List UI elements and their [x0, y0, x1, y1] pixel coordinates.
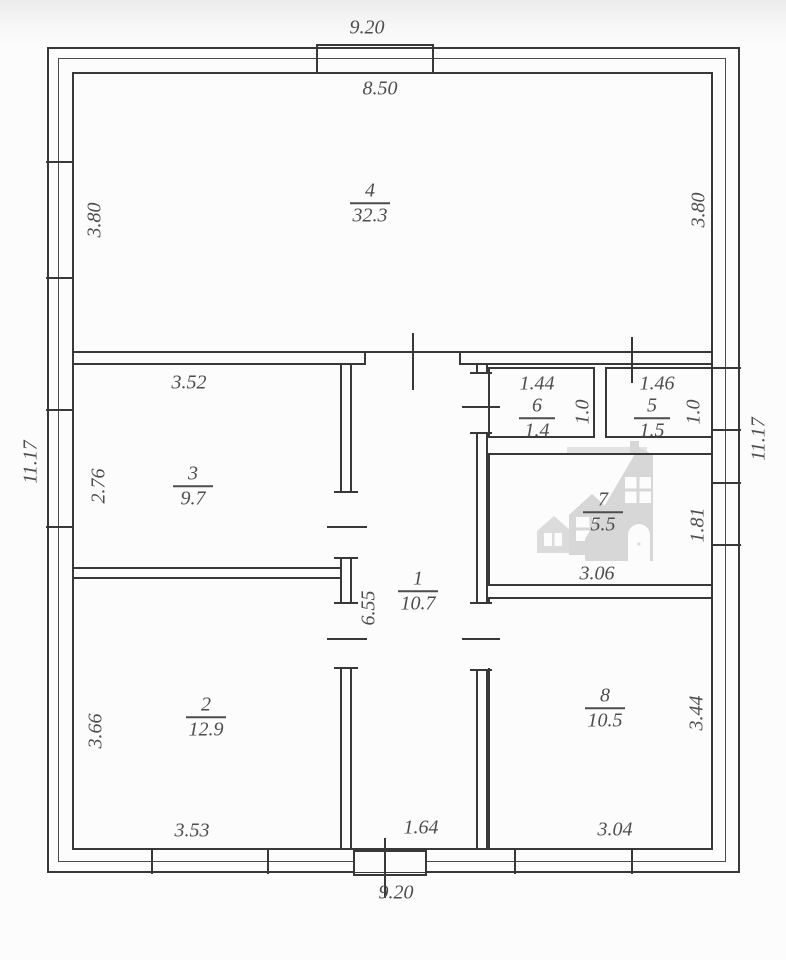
dim-room4-width: 8.50	[363, 78, 398, 101]
dim-room2-width: 3.53	[175, 820, 210, 843]
wall-corridor-left-b1	[350, 365, 352, 492]
room1-label: 1 10.7	[398, 568, 438, 614]
wall-corridor-left-a2	[340, 558, 342, 603]
wall-corridor-left-b3	[350, 668, 352, 850]
dim-room7-width: 3.06	[580, 563, 615, 586]
room7-area: 5.5	[591, 514, 616, 535]
window-bottom-room2-cap-left	[151, 849, 153, 874]
floor-plan: 9.20 9.20 11.17 11.17 8.50 3.80 3.80 4 3…	[0, 0, 786, 960]
window-left-room3-cap-top	[46, 409, 73, 411]
door-cap-room3-top	[334, 491, 358, 493]
wall-corridor-right-a3	[476, 670, 478, 850]
room3-number: 3	[188, 463, 198, 484]
room6-area: 1.4	[525, 420, 550, 441]
dim-room3-height: 2.76	[88, 469, 111, 504]
window-right-room7-cap-bottom	[712, 544, 741, 546]
window-top-cap-left	[316, 45, 318, 73]
wall-corridor-left-a1	[340, 365, 342, 492]
room6-number: 6	[532, 395, 542, 416]
dim-room7-height: 1.81	[687, 508, 710, 543]
window-left-room4-cap-top	[46, 161, 73, 163]
door-dash-room8	[462, 638, 500, 640]
dim-right-overall: 11.17	[748, 417, 771, 461]
room6-label: 6 1.4	[519, 395, 555, 441]
entrance-door	[353, 850, 427, 876]
window-right-room5-cap-bottom	[712, 429, 741, 431]
room5-area: 1.5	[640, 420, 665, 441]
room5-number: 5	[647, 395, 657, 416]
wall-room8-left-upper	[488, 597, 490, 603]
dim-room6-width: 1.44	[520, 373, 555, 396]
wall-room4-bottom-inner-left	[72, 363, 365, 365]
dim-room6-height: 1.0	[572, 400, 595, 425]
wall-corridor-left-b2	[350, 558, 352, 603]
room3-area: 9.7	[181, 488, 206, 509]
wall-room4-bottom-top-line	[72, 351, 713, 353]
window-right-room5-cap-top	[712, 367, 741, 369]
window-right-room7-cap-top	[712, 482, 741, 484]
room5-label: 5 1.5	[634, 395, 670, 441]
door-cap-room2-top	[334, 602, 358, 604]
door-axis-room4-hall	[412, 333, 414, 390]
door-jamb-hall-left	[364, 351, 366, 365]
dim-bottom-overall: 9.20	[379, 882, 414, 905]
dim-room3-width: 3.52	[172, 372, 207, 395]
dim-room8-height: 3.44	[686, 696, 709, 731]
window-bottom-room2-cap-right	[267, 849, 269, 874]
room7-label: 7 5.5	[583, 489, 623, 535]
wall-corridor-left-a3	[340, 668, 342, 850]
room2-area: 12.9	[189, 719, 224, 740]
dim-room5-width: 1.46	[640, 373, 675, 396]
room8-label: 8 10.5	[585, 685, 625, 731]
wall-room4-bottom-inner-right	[460, 363, 713, 365]
room2-number: 2	[201, 694, 211, 715]
window-bottom-room8-cap-right	[631, 849, 633, 874]
dim-room2-height: 3.66	[85, 714, 108, 749]
dim-room5-height: 1.0	[683, 400, 706, 425]
room4-area: 32.3	[353, 205, 388, 226]
door-jamb-hall-right	[459, 351, 461, 365]
room3-label: 3 9.7	[173, 463, 213, 509]
dim-left-overall: 11.17	[20, 440, 43, 484]
dim-room4-left: 3.80	[84, 203, 107, 238]
wall-room3-room2-bottom	[72, 577, 341, 579]
door-dash-room2	[327, 638, 367, 640]
photo-top-fade	[0, 0, 786, 46]
room2-label: 2 12.9	[186, 694, 226, 740]
room8-number: 8	[600, 685, 610, 706]
window-left-room4-cap-bottom	[46, 277, 73, 279]
dim-room1-width: 1.64	[404, 817, 439, 840]
window-bottom-room8-cap-left	[514, 849, 516, 874]
door-dash-room3	[327, 526, 367, 528]
door-cap-room2-bottom	[334, 667, 358, 669]
dim-top-overall: 9.20	[350, 17, 385, 40]
window-top-outer-edge	[316, 44, 434, 46]
room4-label: 4 32.3	[350, 180, 390, 226]
window-top-cap-right	[432, 45, 434, 73]
dim-room8-width: 3.04	[598, 819, 633, 842]
room1-area: 10.7	[401, 593, 436, 614]
dim-room1-height: 6.55	[358, 591, 381, 626]
dim-room4-right: 3.80	[688, 193, 711, 228]
room4-number: 4	[365, 180, 375, 201]
room7-number: 7	[598, 489, 608, 510]
window-left-room3-cap-bottom	[46, 526, 73, 528]
wall-room8-top	[488, 597, 713, 599]
wall-room3-room2-top	[72, 567, 341, 569]
door-cap-room3-bottom	[334, 557, 358, 559]
room1-number: 1	[413, 568, 423, 589]
wall-room8-left-lower	[488, 668, 490, 850]
wall-corridor-right-a2	[476, 433, 478, 603]
room8-area: 10.5	[588, 710, 623, 731]
